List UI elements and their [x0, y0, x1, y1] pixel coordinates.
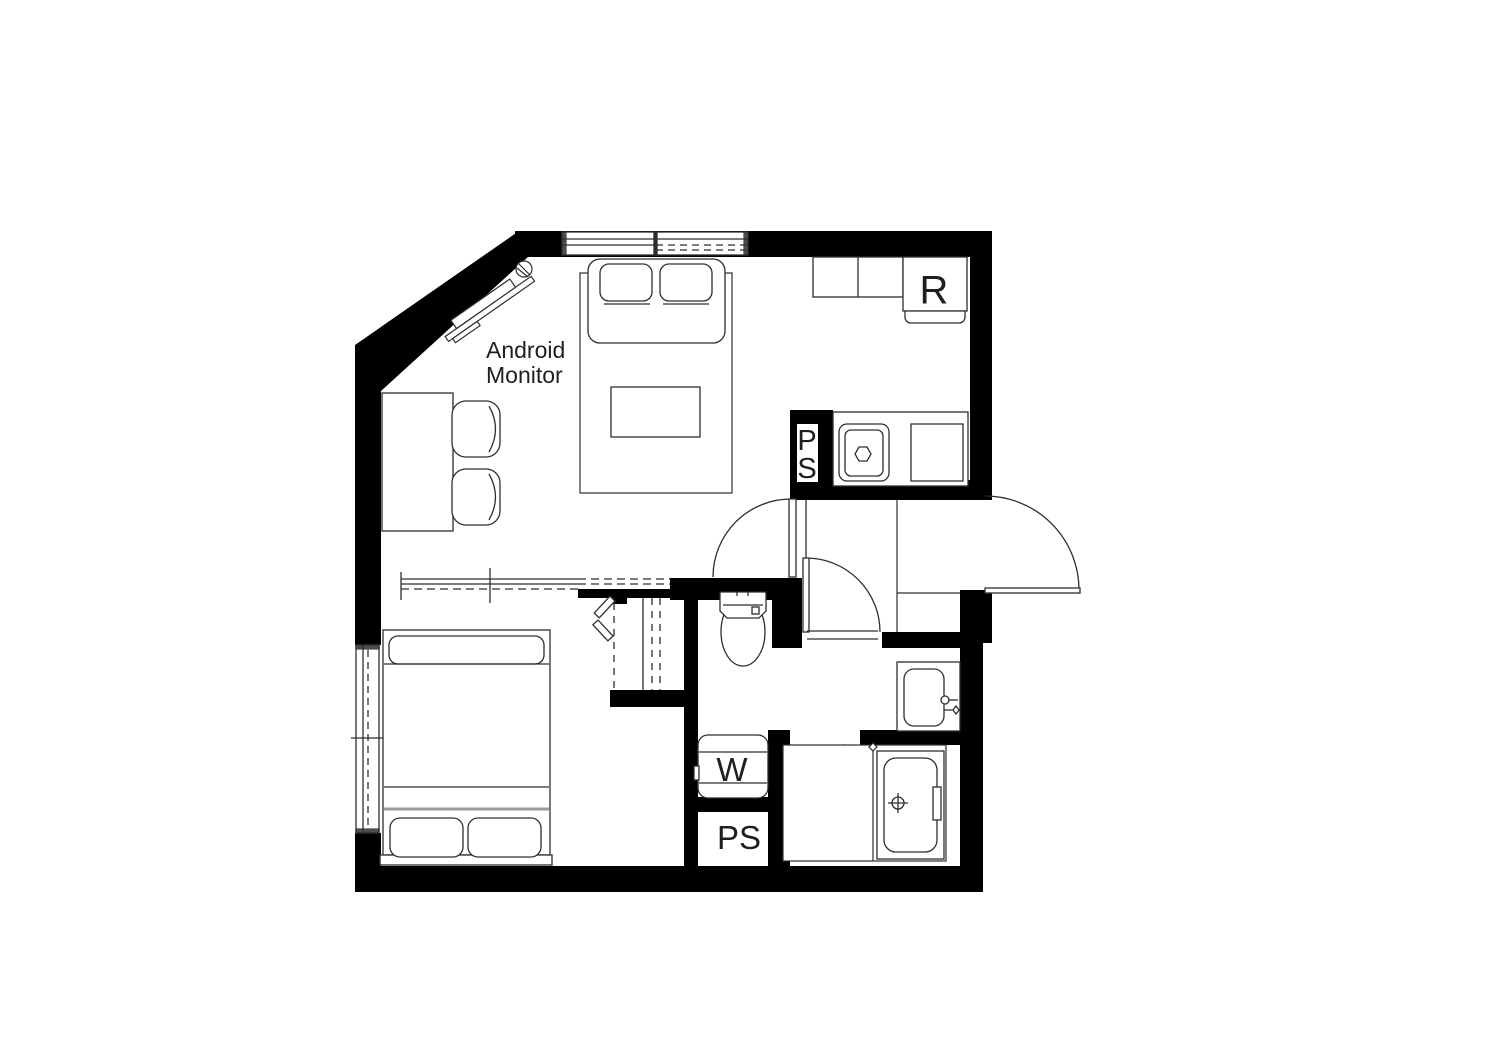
toilet	[720, 592, 766, 666]
pillow	[468, 818, 541, 857]
pipe-space-bottom-label: PS	[717, 819, 761, 857]
dining-chair	[452, 401, 500, 457]
bathtub	[877, 751, 944, 859]
monitor-label-line2: Monitor	[486, 363, 565, 388]
entrance-door	[985, 496, 1080, 593]
refrigerator-label: R	[920, 269, 949, 314]
bed	[380, 630, 552, 865]
pipe-space-kitchen-s: S	[797, 455, 816, 483]
kitchen-cabinets	[813, 257, 903, 297]
washbasin	[897, 662, 960, 731]
pipe-space-kitchen-p: P	[797, 427, 816, 455]
kitchen-stove	[911, 424, 963, 481]
dining-table	[382, 393, 453, 531]
pipe-space-kitchen-label: P S	[797, 427, 816, 483]
pillow	[390, 818, 463, 857]
monitor-label: Android Monitor	[486, 338, 565, 388]
washroom-door	[803, 558, 880, 639]
wall-corner-fixture-icon	[516, 261, 532, 277]
top-window	[562, 232, 748, 255]
living-room-door	[713, 499, 806, 578]
dining-chair	[452, 469, 500, 525]
closet-bifold-door-icon	[593, 596, 615, 641]
faucet-icon	[855, 447, 871, 461]
floor-plan-drawing	[0, 0, 1500, 1060]
monitor-label-line1: Android	[486, 338, 565, 363]
closet	[614, 598, 660, 690]
washing-machine-label: W	[716, 751, 747, 789]
floor-plan: Android Monitor R P S W PS	[0, 0, 1500, 1060]
sofa	[588, 259, 725, 343]
kitchen-sink	[839, 424, 889, 481]
genkan-step	[897, 500, 960, 632]
bedroom-left-window	[351, 645, 383, 833]
coffee-table	[611, 387, 700, 437]
